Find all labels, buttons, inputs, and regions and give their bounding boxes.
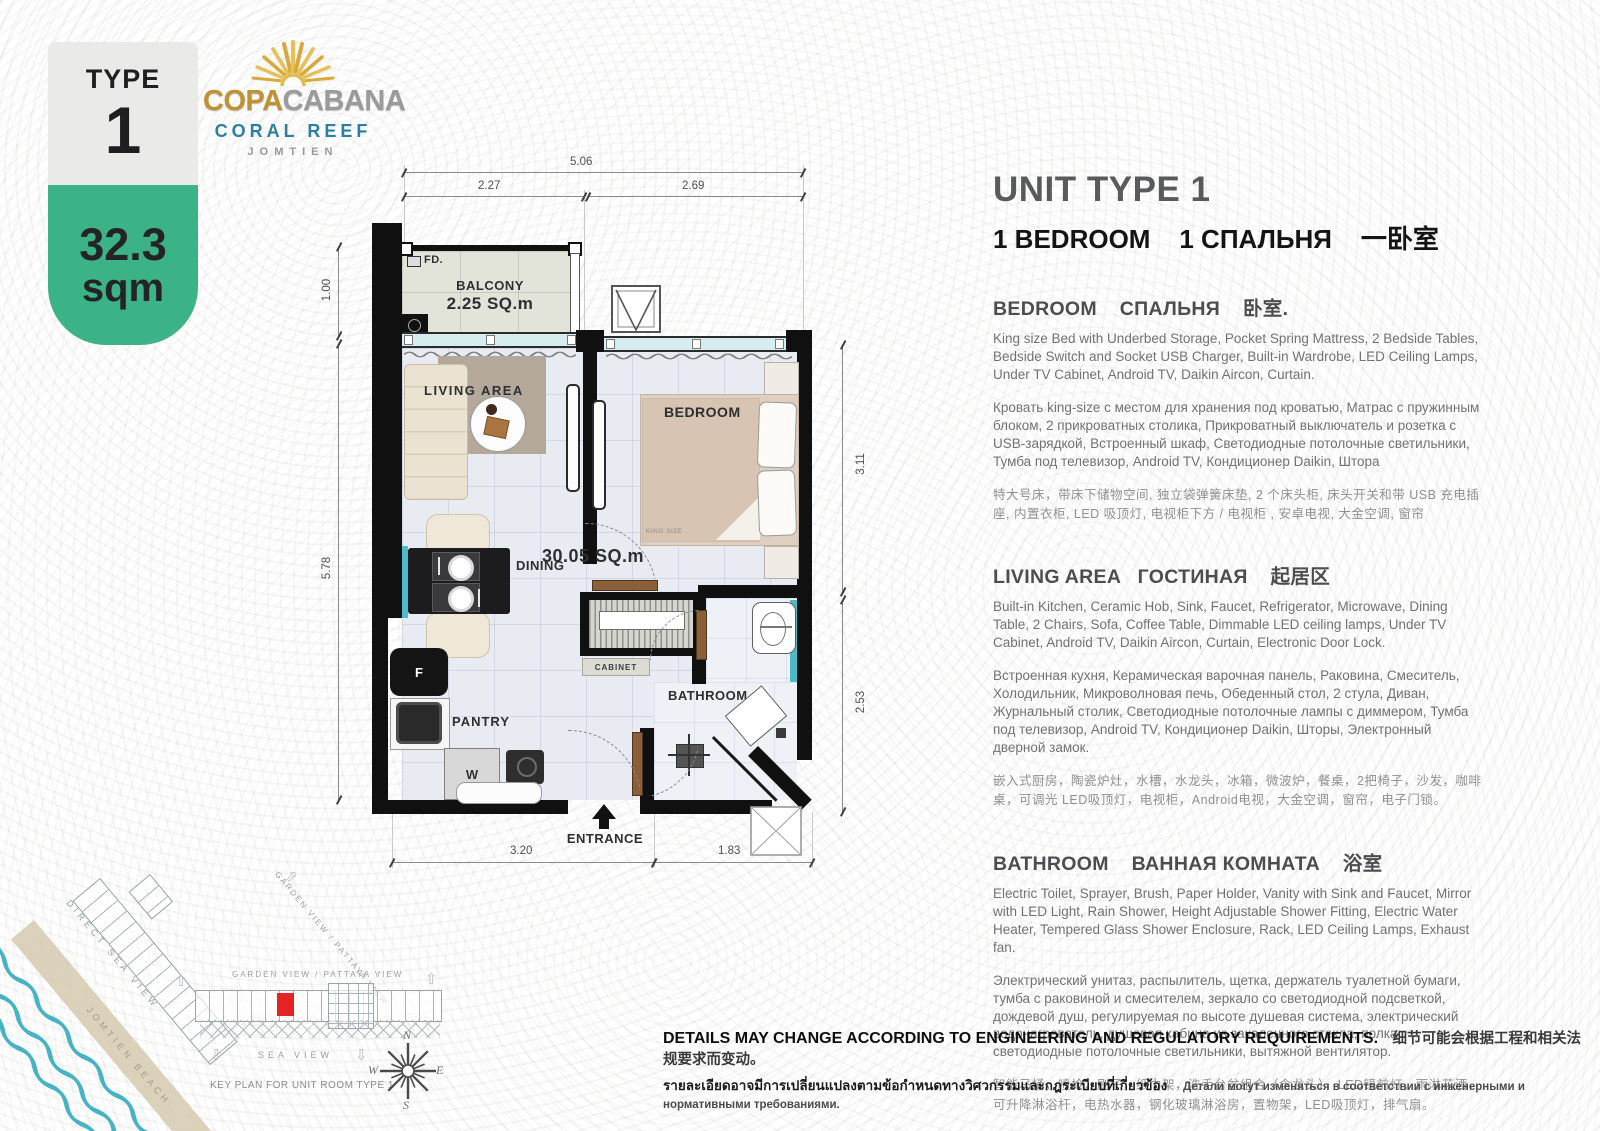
- balcony-railing: [402, 245, 578, 251]
- highlighted-unit: [277, 993, 294, 1016]
- dim-line-right-lower: [842, 600, 843, 812]
- direction-arrow-icon: ⇧: [425, 970, 438, 988]
- living-section: LIVING AREA ГОСТИНАЯ 起居区 Built-in Kitche…: [993, 560, 1483, 810]
- shower-door-arc: [636, 734, 698, 796]
- balcony-label: BALCONY: [402, 278, 578, 293]
- floor-drain-icon: [408, 319, 421, 332]
- extension-line: [404, 165, 405, 251]
- direction-arrow-icon: ⇧: [210, 1045, 223, 1063]
- tv-panel-bedroom: [592, 400, 606, 510]
- dim-line-left-main: [338, 344, 339, 800]
- unit-type-badge: TYPE 1 32.3 sqm: [48, 42, 198, 345]
- dim-line-top-right: [588, 196, 803, 197]
- dim-right-lower: 2.53: [855, 691, 867, 713]
- compass-rose-icon: [376, 1039, 440, 1103]
- toilet-flush-icon: [760, 626, 792, 628]
- bedside-table: [764, 362, 799, 395]
- brand-name-silver: CABANA: [283, 85, 406, 117]
- cutlery-icon: [438, 557, 440, 575]
- wall-bedroom-bottom: [698, 585, 812, 598]
- dim-bottom-left: 3.20: [510, 845, 532, 857]
- sun-rays-icon: [245, 40, 341, 86]
- building-tower: [129, 874, 174, 920]
- garden-view-horizontal-label: GARDEN VIEW / PATTAYA VIEW: [232, 970, 403, 979]
- wall-left: [372, 223, 402, 618]
- extension-line: [584, 190, 585, 336]
- balcony-area-label: 2.25 SQ.m: [402, 294, 578, 314]
- cabinet-label-box: CABINET: [582, 658, 650, 676]
- bathroom-door-arc: [650, 610, 700, 660]
- unit-type-badge-top: TYPE 1: [48, 42, 198, 185]
- entrance-arrow-stem: [599, 819, 609, 829]
- refrigerator: F: [390, 648, 448, 696]
- direction-arrow-icon: ⇧: [175, 972, 188, 990]
- compass-s: S: [403, 1098, 409, 1113]
- fd-icon: [407, 256, 421, 267]
- disclaimer-en: DETAILS MAY CHANGE ACCORDING TO ENGINEER…: [663, 1030, 1378, 1047]
- living-area-label: LIVING AREA: [424, 383, 524, 398]
- bedroom-text-zh: 特大号床，带床下储物空间, 独立袋弹簧床垫, 2 个床头柜, 床头开关和带 US…: [993, 486, 1483, 525]
- living-text-zh: 嵌入式厨房，陶瓷炉灶，水槽，水龙头，冰箱，微波炉，餐桌，2把椅子，沙发，咖啡桌，…: [993, 772, 1483, 811]
- unit-details-panel: UNIT TYPE 1 1 BEDROOM 1 СПАЛЬНЯ 一卧室 BEDR…: [993, 170, 1483, 1115]
- curtain-squiggle: [606, 352, 792, 361]
- wall-left-lower: [372, 618, 388, 814]
- compass-w: W: [368, 1063, 378, 1078]
- disclaimer: DETAILS MAY CHANGE ACCORDING TO ENGINEER…: [663, 1027, 1588, 1111]
- wall-right: [797, 336, 812, 760]
- living-text-en: Built-in Kitchen, Ceramic Hob, Sink, Fau…: [993, 598, 1483, 652]
- pillow: [757, 401, 797, 468]
- bathroom-label: BATHROOM: [668, 688, 748, 703]
- area-value: 32.3: [79, 222, 167, 268]
- toilet-bowl-icon: [760, 612, 786, 646]
- dim-bottom-right: 1.83: [718, 845, 740, 857]
- bathroom-section-heading: BATHROOM ВАННАЯ КОМНАТА 浴室: [993, 847, 1483, 876]
- bedroom-section: BEDROOM СПАЛЬНЯ 卧室. King size Bed with U…: [993, 292, 1483, 524]
- entrance-label: ENTRANCE: [560, 831, 650, 846]
- shaft-box: [610, 284, 662, 334]
- pantry-bench: [456, 782, 542, 804]
- compass: N E S W: [372, 1030, 444, 1112]
- brand-logo: COPACABANA CORAL REEF JOMTIEN: [203, 40, 383, 158]
- dim-line-left-upper: [338, 247, 339, 336]
- bedroom-text-en: King size Bed with Underbed Storage, Poc…: [993, 330, 1483, 384]
- tv-panel-living: [566, 384, 580, 492]
- plate-icon: [448, 586, 474, 612]
- dim-line-top-left: [404, 196, 584, 197]
- fd-label: FD.: [424, 254, 443, 266]
- pillow: [757, 469, 797, 536]
- compass-n: N: [403, 1028, 411, 1043]
- entrance-arrow-icon: [592, 804, 616, 819]
- disclaimer-th: รายละเอียดอาจมีการเปลี่ยนแปลงตามข้อกำหนด…: [663, 1078, 1167, 1093]
- bedroom-window: [604, 336, 786, 352]
- key-plan: SEA JOMTIEN BEACH DIRECT SEA VIEW GARDEN…: [0, 850, 480, 1120]
- direction-arrow-icon: ⇧: [355, 1045, 368, 1063]
- balcony-sliding-door: [402, 332, 578, 348]
- living-section-heading: LIVING AREA ГОСТИНАЯ 起居区: [993, 560, 1483, 589]
- sea-view-label: SEA VIEW: [258, 1050, 333, 1060]
- compass-e: E: [436, 1063, 443, 1078]
- disclaimer-line1: DETAILS MAY CHANGE ACCORDING TO ENGINEER…: [663, 1027, 1588, 1069]
- building-wing-horizontal: [195, 990, 442, 1022]
- dim-left-main: 5.78: [321, 557, 333, 579]
- dim-left-upper: 1.00: [321, 279, 333, 301]
- dim-right-upper: 3.11: [855, 453, 867, 475]
- bedroom-door-arc: [585, 523, 655, 593]
- bedroom-text-ru: Кровать king-size с местом для хранения …: [993, 399, 1483, 471]
- dim-top-total: 5.06: [570, 156, 592, 168]
- cutlery-icon: [478, 589, 480, 607]
- brand-name-gold: COPA: [203, 85, 283, 117]
- plate-icon: [448, 555, 474, 581]
- dining-label: DINING: [516, 558, 565, 573]
- living-text-ru: Встроенная кухня, Керамическая варочная …: [993, 667, 1483, 757]
- entrance-door-arc: [568, 730, 640, 802]
- dim-line-right-upper: [842, 345, 843, 592]
- faucet-icon: [776, 728, 786, 738]
- bed-blanket-fold: [716, 496, 760, 540]
- bedroom-label: BEDROOM: [664, 404, 741, 420]
- sink-basin: [396, 702, 442, 744]
- bedroom-section-heading: BEDROOM СПАЛЬНЯ 卧室.: [993, 292, 1483, 321]
- bedside-table: [764, 546, 799, 579]
- bathroom-text-en: Electric Toilet, Sprayer, Brush, Paper H…: [993, 885, 1483, 957]
- dim-line-bottom-right: [654, 862, 812, 863]
- unit-subtitle: 1 BEDROOM 1 СПАЛЬНЯ 一卧室: [993, 219, 1483, 256]
- entry-door-leaf: [750, 806, 802, 856]
- wall-window-pier: [786, 330, 812, 352]
- unit-area-badge: 32.3 sqm: [48, 185, 198, 345]
- brand-line3: JOMTIEN: [203, 146, 383, 158]
- pantry-label: PANTRY: [452, 714, 510, 729]
- floorplan-brochure-page: TYPE 1 32.3 sqm: [0, 0, 1600, 1131]
- dim-top-right: 2.69: [682, 180, 704, 192]
- brand-line2: CORAL REEF: [203, 121, 383, 142]
- hob-burner-icon: [517, 757, 537, 777]
- dim-top-left: 2.27: [478, 180, 500, 192]
- type-number: 1: [105, 97, 142, 163]
- key-plan-caption: KEY PLAN FOR UNIT ROOM TYPE 1: [210, 1080, 394, 1091]
- disclaimer-line2: รายละเอียดอาจมีการเปลี่ยนแปลงตามข้อกำหนด…: [663, 1074, 1588, 1111]
- dim-line-top-total: [404, 172, 803, 173]
- page-title: UNIT TYPE 1: [993, 170, 1483, 210]
- area-unit: sqm: [82, 268, 164, 309]
- type-label: TYPE: [86, 64, 161, 95]
- wall-window-pier: [576, 330, 604, 352]
- brand-wordmark: COPACABANA: [203, 87, 383, 116]
- coffee-cup-icon: [486, 404, 497, 415]
